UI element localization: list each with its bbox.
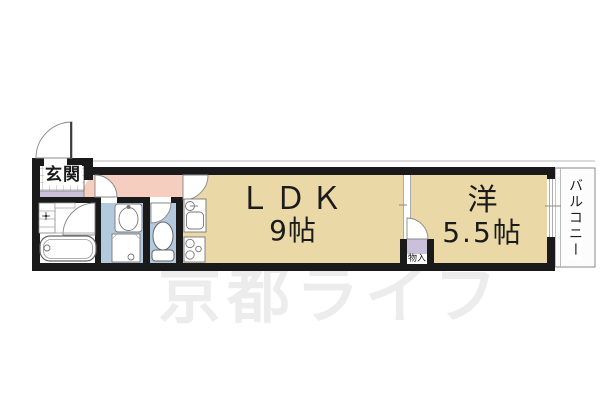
genkan-label: 玄関	[40, 167, 86, 184]
wall-toilet-kitchen	[176, 197, 183, 263]
wall-bottom	[32, 263, 555, 271]
wall-entrance-left	[32, 158, 44, 166]
toilet-icon	[152, 222, 174, 261]
wall-right-upper	[547, 167, 555, 179]
wall-wash-toilet	[143, 197, 150, 263]
hallway-floor	[78, 175, 183, 197]
balcony-label: バルコニー	[556, 170, 594, 265]
entrance-step	[39, 191, 84, 198]
closet-label: 物入	[403, 248, 431, 264]
bathtub-icon	[40, 236, 96, 261]
western-room-label: 洋	[411, 186, 554, 216]
wall-hall-a	[39, 197, 95, 203]
floorplan-image: 京都ライフ	[0, 0, 600, 400]
ldk-size-label: 9帖	[183, 217, 403, 245]
washbasin-icon	[115, 204, 142, 232]
washing-machine-icon	[112, 234, 140, 262]
ldk-label: ＬＤＫ	[183, 184, 403, 215]
western-room-size-label: 5.5帖	[411, 219, 554, 247]
entrance-door-swing-icon	[36, 122, 72, 158]
wall-top	[90, 167, 555, 175]
